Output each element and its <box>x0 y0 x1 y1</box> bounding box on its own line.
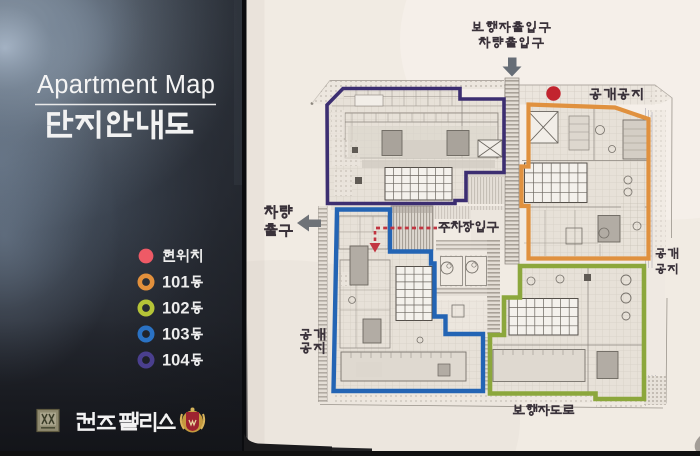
svg-text:Apartment Map: Apartment Map <box>37 71 215 99</box>
svg-text:102: 102 <box>162 300 190 318</box>
svg-text:101: 101 <box>162 274 190 292</box>
svg-text:104: 104 <box>162 352 190 370</box>
svg-text:103: 103 <box>162 326 190 344</box>
